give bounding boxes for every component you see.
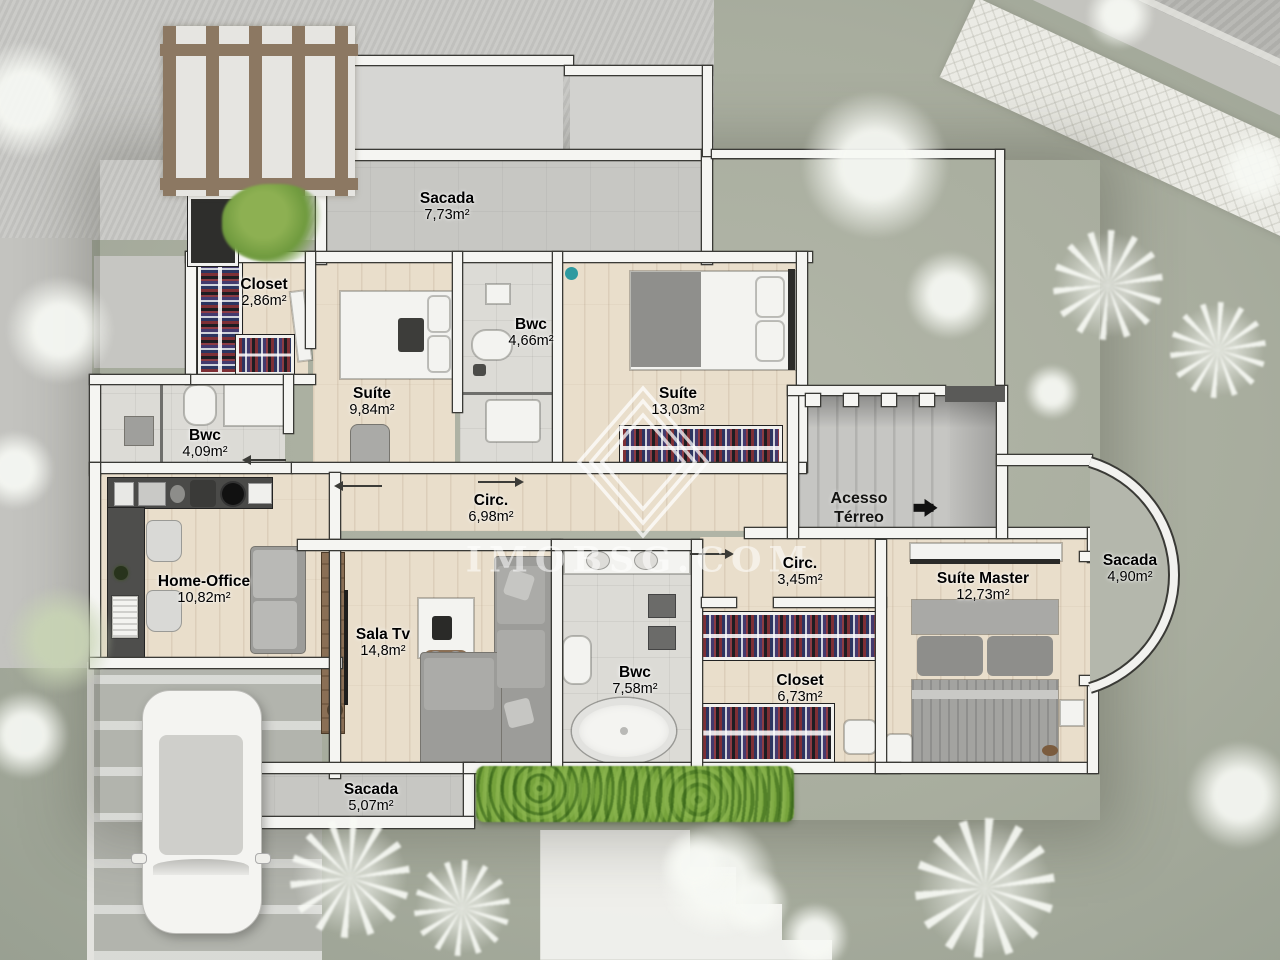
wall [703,66,712,156]
access-terreo-label: Acesso Térreo [831,489,888,527]
suite-master-pillow-1 [917,636,983,676]
terrace-plant [660,830,730,900]
bwc-2-vanity [224,384,286,426]
fern [0,690,70,780]
wall [316,150,712,160]
suite-master-blanket-fold [912,690,1058,699]
suite-master-decor [1042,745,1058,756]
counter-item-bowl [222,483,244,505]
closet-1-rack-horizontal [236,335,294,375]
stair-baluster [806,394,820,406]
stair-baluster [844,394,858,406]
car-mirror-left [131,853,147,864]
wall [306,252,315,348]
suite-1-armchair [350,424,390,468]
bwc-2-shower-mat [124,416,154,446]
suite-2-headboard [788,269,795,370]
coffee-table-tray [432,616,452,640]
bwc-2-shower-glass [160,382,163,466]
hedge-bottom [476,766,794,822]
porch-b-floor [570,71,710,156]
wall [186,252,196,384]
wall [90,658,342,668]
tv-screen [344,590,348,705]
suite-master-headboard [912,600,1058,634]
stair-baluster [920,394,934,406]
sacada-right-floor [1090,462,1174,688]
bwc-1-sink [486,284,510,304]
wall [553,252,562,470]
palm-tree [290,818,410,938]
sofa-cushion-2 [497,630,545,688]
bwc-1-bin [473,364,486,376]
wall [330,540,340,778]
fern [1185,740,1280,850]
car-windshield-line [153,859,249,875]
wall [797,252,807,472]
wall [745,528,1100,538]
wall [876,540,886,773]
counter-item-silver [138,482,166,506]
door-swing-arrow [478,481,520,483]
suite-2-pillow-1 [756,277,784,317]
suite-1-pillow-1 [428,296,450,332]
wall [292,463,806,473]
wall [90,375,190,384]
balcony-stub-bottom [1080,676,1098,685]
room-name: Sacada [1103,552,1157,569]
room-area: 4,90m² [1103,570,1157,586]
counter-item-widget [190,480,216,507]
bwc-1-shower-tray [486,400,540,442]
wall [343,56,573,65]
home-office-keyboard [112,596,138,638]
pergola-bush [222,184,326,262]
pergola-rail-top [160,44,358,56]
access-line-2: Térreo [831,508,888,527]
wall [565,66,712,75]
wall [702,150,712,264]
palm-tree [1170,302,1266,398]
closet-2-rack-bottom [700,704,834,762]
car [142,690,262,934]
watermark-text: IMOBSG.COM [466,540,814,581]
palm-tree [1053,230,1163,340]
home-office-chair-2 [146,590,182,632]
bwc-3-toilet [563,636,591,684]
tree-green [5,585,115,695]
sacada-bottom-floor [230,771,470,821]
suite-2-pillow-2 [756,321,784,361]
bwc-2-toilet [184,385,216,425]
wall [997,455,1092,465]
suite-1-throw [398,318,424,352]
door-swing-arrow [246,459,286,461]
sacada-right-railing-inner [1090,462,1174,688]
suite-2-blanket [631,272,701,367]
closet-2-rack-top [700,612,880,660]
terrace-plant [720,868,790,938]
wall [90,463,292,473]
bwc-1-toilet [472,330,512,360]
floor-plan-scene: IMOBSG.COM Acesso Térreo Sacada 7,73m² C… [0,0,1280,960]
home-office-chair-1 [146,520,182,562]
sofa-cushion-3 [424,658,494,710]
sacada-right-railing [1090,462,1174,688]
stair-void-shade [945,386,1005,402]
bwc-1-shower-glass [462,392,554,395]
tree [905,250,995,340]
door-swing-arrow [338,485,382,487]
wall [876,763,1096,773]
car-mirror-right [255,853,271,864]
wall [774,598,886,607]
wall [186,375,315,384]
home-office-sofa-cushion-1 [253,550,297,598]
terrace-plant [780,902,850,960]
suite-1-pillow-2 [428,336,450,372]
palm-tree [414,860,510,956]
bwc-3-cabinet-1 [648,594,676,618]
room-label-sacada-right: Sacada 4,90m² [1103,552,1157,586]
sacada-top-floor [326,160,704,256]
suite-master-pillow-2 [987,636,1053,676]
counter-item-machine [114,482,134,506]
access-line-1: Acesso [831,489,888,508]
access-arrow-icon [913,504,933,512]
wall [90,375,100,475]
wall [788,386,798,538]
tree [800,90,950,240]
counter-item-jar [170,485,185,503]
wall [996,150,1004,396]
suite-master-sideboard-edge [910,559,1060,564]
home-office-plant [114,566,128,580]
suite-2-decor-teal [565,267,578,280]
wall [702,598,736,607]
balcony-stub-top [1080,552,1098,561]
wall [284,375,293,433]
suite-master-nightstand [1060,700,1084,726]
stair-baluster [882,394,896,406]
car-roof-glass [159,735,243,855]
porch-a-floor [348,61,563,156]
suite-master-bench [886,734,912,766]
palm-tree [915,818,1055,958]
wall [1088,682,1098,773]
stairs-shade-right [946,394,998,530]
counter-item-laptop [248,483,272,504]
home-office-sofa-cushion-2 [253,601,297,649]
tree [1024,364,1080,420]
bathtub-drain [620,727,628,735]
fern [5,275,115,385]
bwc-3-cabinet-2 [648,626,676,650]
driveway-curb [87,662,94,960]
wall [453,252,462,412]
closet-2-pouf [844,720,876,754]
